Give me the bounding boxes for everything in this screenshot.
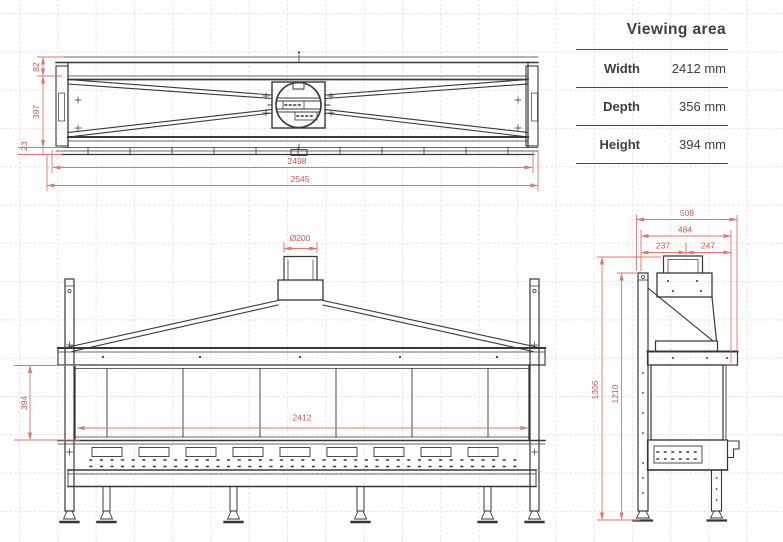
dim-side-frame-depth: 484 bbox=[678, 225, 692, 235]
dim-label: Height bbox=[576, 137, 654, 152]
dim-side-flue-to-front: 247 bbox=[701, 241, 715, 251]
dim-side-frame-height: 1210 bbox=[610, 384, 620, 403]
dim-label: Depth bbox=[576, 99, 654, 114]
dim-top-front-lip: 23 bbox=[19, 141, 29, 151]
dim-side-rear-to-flue: 237 bbox=[656, 241, 670, 251]
dim-top-body-depth: 397 bbox=[31, 105, 41, 119]
table-title: Viewing area bbox=[576, 14, 728, 50]
dim-front-glass-width: 2412 bbox=[293, 413, 312, 423]
dim-label: Width bbox=[576, 61, 654, 76]
dim-top-inner-width: 2498 bbox=[288, 156, 307, 166]
top-view-center-dot bbox=[298, 51, 300, 53]
dim-value: 394 mm bbox=[654, 137, 728, 152]
dim-top-overall-width: 2545 bbox=[291, 174, 310, 184]
dim-side-overall-height: 1306 bbox=[590, 380, 600, 399]
dim-side-overall-depth: 508 bbox=[680, 208, 694, 218]
drawing-sheet: 82 397 23 2498 2545 bbox=[0, 0, 783, 542]
dim-value: 2412 mm bbox=[654, 61, 728, 76]
dim-front-flue-diameter: Ø200 bbox=[290, 233, 311, 243]
dim-top-rear-depth: 82 bbox=[31, 62, 41, 72]
table-row: Depth 356 mm bbox=[576, 88, 728, 126]
table-row: Height 394 mm bbox=[576, 126, 728, 164]
viewing-area-table: Viewing area Width 2412 mm Depth 356 mm … bbox=[576, 14, 728, 164]
table-row: Width 2412 mm bbox=[576, 50, 728, 88]
dim-front-glass-height: 394 bbox=[19, 396, 29, 410]
dim-value: 356 mm bbox=[654, 99, 728, 114]
